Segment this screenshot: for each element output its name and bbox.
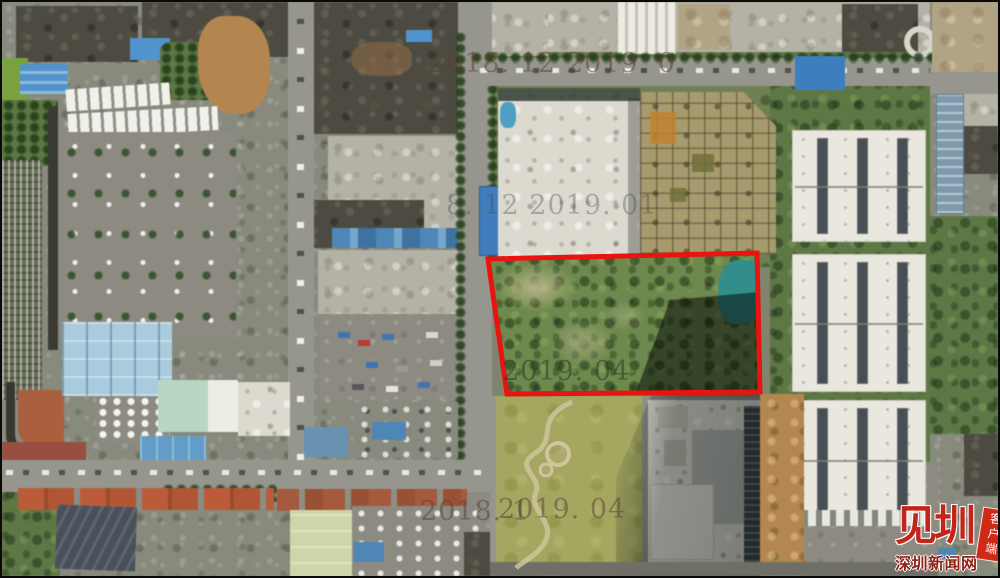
annotation-overlay [2,2,998,576]
watermark-date: 2019. 04 [498,494,626,525]
watermark-date: 8. 12 2019. 01 [446,190,658,221]
watermark-date: 2019. 04 [502,356,630,387]
park-circle-feature [547,443,569,465]
logo-client-tag: 客户端 [975,506,1000,562]
park-path [516,402,572,568]
satellite-image: 2018. 12 2019. 0 8. 12 2019. 01 2019. 04… [0,0,1000,578]
news-logo: 见圳 深圳新闻网 客户端 [893,506,1000,578]
logo-site-name: 深圳新闻网 [895,550,978,574]
watermark-date: 2018. 12 2019. 0 [428,48,676,79]
logo-brand-glyph: 见圳 [895,502,973,550]
park-circle-feature [540,464,552,476]
